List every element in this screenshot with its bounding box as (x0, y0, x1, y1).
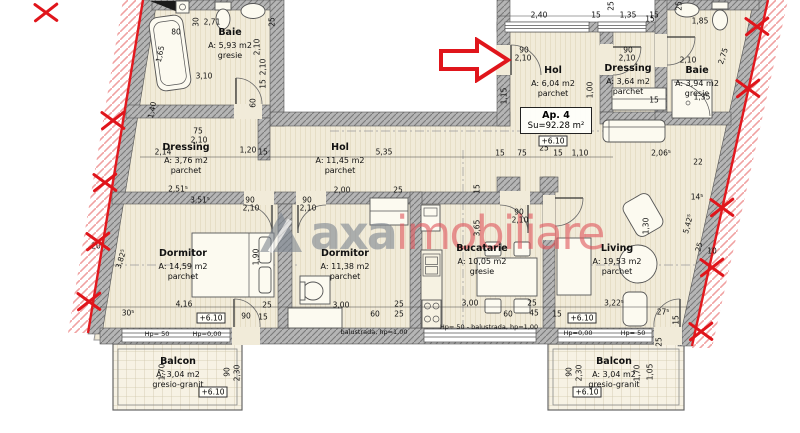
kitchen-counter (421, 250, 442, 328)
room-area: A: 3,76 m2 (162, 156, 209, 166)
dim-label: 80 (171, 28, 181, 37)
toilet-icon (712, 2, 728, 9)
dim-label: 25 (393, 186, 403, 195)
dim-label: 2,71 (204, 18, 221, 27)
dresser-icon (288, 308, 342, 328)
dim-label: 15 (649, 96, 659, 105)
room-floor: gresie (456, 267, 507, 277)
dim-label: 1,20 (240, 146, 257, 155)
room-floor: parchet (321, 272, 370, 282)
dim-label: 27⁵ (657, 308, 670, 317)
dim-label: 30 (192, 17, 201, 27)
dim-label: 90 (241, 312, 251, 321)
room-name: Dormitor (159, 248, 208, 259)
dim-label: 15 (552, 310, 562, 319)
note-label: Hp= 50 (621, 329, 646, 337)
dim-label: 25 (675, 1, 684, 11)
room-area: A: 6,04 m2 (531, 79, 575, 89)
dim-label: 15 (645, 15, 655, 24)
note-label: Hp= 50 (145, 330, 170, 338)
apartment-info-box: Ap. 4 Su=92.28 m² (520, 107, 592, 134)
note-label: Hp= 50 - balustrada, hp=1,00 (440, 323, 538, 331)
dim-label: 1,00 (586, 82, 595, 99)
room-area: A: 10,05 m2 (456, 257, 507, 267)
dim-label: 2,10 (680, 56, 697, 65)
level-marker: +6.10 (568, 313, 597, 324)
room-area: A: 3,04 m2 (588, 370, 639, 380)
room-name: Baie (675, 65, 719, 76)
room-floor: gresio-granit (152, 380, 203, 390)
sink-icon (241, 4, 265, 19)
floor-plan-page: axaimobiliare Ap. 4 Su=92.28 m² 2,713025… (0, 0, 800, 433)
dim-label: 60 (503, 310, 513, 319)
room-floor: parchet (316, 166, 365, 176)
dim-label: 15 (473, 184, 482, 194)
room-name: Baie (208, 27, 252, 38)
dim-label: 90 (223, 367, 232, 377)
dim-label: 1,15 (500, 88, 509, 105)
room-floor: parchet (604, 87, 651, 97)
dim-label: 3,00 (462, 299, 479, 308)
dim-label: 75 (193, 127, 203, 136)
room-label: DressingA: 3,76 m2parchet (162, 142, 209, 175)
room-floor: parchet (159, 272, 208, 282)
washer-icon (176, 1, 189, 13)
level-marker: +6.10 (539, 136, 568, 147)
dim-label: 2,30 (233, 365, 242, 382)
dim-label: 75 (517, 149, 527, 158)
dim-label: 15 (258, 313, 268, 322)
dim-label: 14⁵ (691, 193, 704, 202)
dim-label: 25 (607, 1, 616, 11)
room-floor: gresio-granit (588, 380, 639, 390)
level-marker: +6.10 (197, 313, 226, 324)
dim-label: 3,22⁵ (604, 299, 624, 308)
dim-label: 20 (91, 242, 101, 251)
room-name: Dressing (604, 63, 651, 74)
dim-label: 1,85 (692, 17, 709, 26)
dim-label: 25 (394, 300, 404, 309)
dim-label: 60 (370, 310, 380, 319)
chair-icon (514, 242, 530, 256)
entrance-arrow-icon (438, 37, 512, 83)
dim-label: 45 (529, 309, 539, 318)
dim-label: 1,05 (646, 364, 655, 381)
chair-icon (303, 282, 323, 300)
room-floor: parchet (593, 267, 642, 277)
room-label: DressingA: 3,64 m2parchet (604, 63, 651, 96)
apartment-label: Ap. 4 (522, 110, 590, 121)
room-floor: parchet (531, 89, 575, 99)
dim-label: 3,65 (473, 220, 482, 237)
dim-label: 1,35 (620, 11, 637, 20)
chair-icon (485, 299, 501, 313)
dim-label: 25 (655, 337, 664, 347)
dim-label: 25 (268, 17, 277, 27)
room-label: HolA: 6,04 m2parchet (531, 65, 575, 98)
dim-label: 2,10 (515, 54, 532, 63)
room-label: BaieA: 3,94 m2gresie (675, 65, 719, 98)
room-area: A: 3,04 m2 (152, 370, 203, 380)
room-area: A: 11,45 m2 (316, 156, 365, 166)
room-name: Living (593, 243, 642, 254)
room-area: A: 5,93 m2 (208, 41, 252, 51)
note-label: balustrada, hp=1,00 (340, 328, 407, 336)
room-label: BalconA: 3,04 m2gresio-granit (152, 356, 203, 389)
dim-label: 2,40 (531, 11, 548, 20)
dim-label: 1,30 (642, 218, 651, 235)
dim-label: 2,10 (300, 204, 317, 213)
dim-label: 2,10 (619, 54, 636, 63)
room-name: Balcon (588, 356, 639, 367)
dim-label: 10 (707, 247, 717, 256)
room-floor: gresie (208, 51, 252, 61)
dim-label: 25 (262, 301, 272, 310)
armchair-icon (623, 292, 647, 326)
dim-label: 2,00 (334, 186, 351, 195)
note-label: Hp=0,00 (564, 329, 593, 337)
dim-label: 2,51⁵ (168, 185, 188, 194)
dim-label: 25 (527, 299, 537, 308)
dim-label: 2,06⁵ (651, 149, 671, 158)
room-area: A: 11,38 m2 (321, 262, 370, 272)
dim-label: 22 (693, 158, 703, 167)
room-label: BaieA: 5,93 m2gresie (208, 27, 252, 60)
apartment-area: Su=92.28 m² (522, 121, 590, 131)
dim-label: 15 (259, 79, 268, 89)
dim-label: 15 (672, 315, 681, 325)
dim-label: 90 (565, 367, 574, 377)
dim-label: 2,10 (253, 39, 262, 56)
dim-label: 2,30 (575, 365, 584, 382)
dim-label: 2,10 (243, 204, 260, 213)
dim-label: 4,16 (176, 300, 193, 309)
dim-label: 3,51⁵ (190, 196, 210, 205)
room-floor: parchet (162, 166, 209, 176)
room-name: Bucatarie (456, 243, 507, 254)
dim-label: 15 (258, 148, 268, 157)
room-area: A: 3,64 m2 (604, 77, 651, 87)
dim-label: 15 (553, 149, 563, 158)
dim-label: 60 (249, 98, 258, 108)
dim-label: 1,90 (252, 249, 261, 266)
dim-label: 25 (394, 310, 404, 319)
dim-label: 15 (591, 11, 601, 20)
wardrobe-icon (370, 198, 408, 225)
room-area: A: 19,53 m2 (593, 257, 642, 267)
dim-label: 2,10 (512, 216, 529, 225)
dim-label: 5,35 (376, 148, 393, 157)
note-label: Hp=0,00 (193, 330, 222, 338)
room-area: A: 3,94 m2 (675, 79, 719, 89)
room-label: DormitorA: 14,59 m2parchet (159, 248, 208, 281)
room-name: Balcon (152, 356, 203, 367)
room-name: Hol (316, 142, 365, 153)
room-floor: gresie (675, 89, 719, 99)
room-name: Hol (531, 65, 575, 76)
dim-label: 3,00 (333, 301, 350, 310)
room-name: Dormitor (321, 248, 370, 259)
room-label: BucatarieA: 10,05 m2gresie (456, 243, 507, 276)
room-name: Dressing (162, 142, 209, 153)
room-label: DormitorA: 11,38 m2parchet (321, 248, 370, 281)
room-label: HolA: 11,45 m2parchet (316, 142, 365, 175)
dim-label: 15 (495, 149, 505, 158)
room-label: LivingA: 19,53 m2parchet (593, 243, 642, 276)
room-area: A: 14,59 m2 (159, 262, 208, 272)
dim-label: 2,10 (259, 59, 268, 76)
dim-label: 3,10 (196, 72, 213, 81)
tv-unit-icon (557, 238, 591, 295)
room-label: BalconA: 3,04 m2gresio-granit (588, 356, 639, 389)
sofa-icon (603, 120, 665, 142)
dim-label: 30⁵ (122, 309, 135, 318)
dim-label: 1,10 (572, 149, 589, 158)
